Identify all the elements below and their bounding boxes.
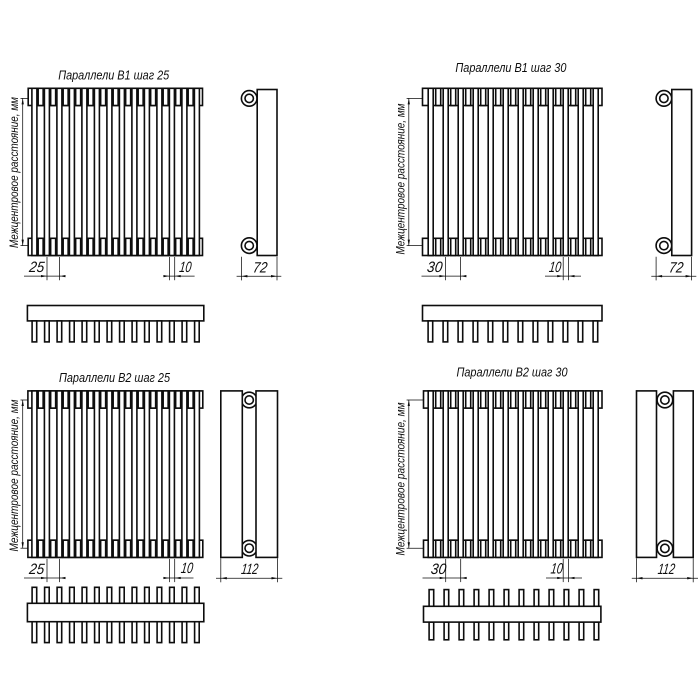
svg-text:72: 72 bbox=[668, 260, 685, 277]
svg-text:30: 30 bbox=[426, 259, 444, 276]
svg-text:25: 25 bbox=[27, 259, 46, 276]
svg-text:112: 112 bbox=[657, 561, 677, 578]
svg-text:25: 25 bbox=[27, 561, 46, 578]
svg-text:Параллели В1 шаг 25: Параллели В1 шаг 25 bbox=[58, 67, 170, 82]
svg-text:112: 112 bbox=[240, 561, 260, 578]
svg-text:Параллели В1 шаг 30: Параллели В1 шаг 30 bbox=[455, 60, 567, 75]
svg-text:Межцентровое расстояние, мм: Межцентровое расстояние, мм bbox=[395, 402, 407, 555]
svg-text:Параллели В2 шаг 30: Параллели В2 шаг 30 bbox=[457, 365, 569, 380]
svg-text:Параллели В2 шаг 25: Параллели В2 шаг 25 bbox=[59, 370, 171, 385]
svg-text:Межцентровое расстояние, мм: Межцентровое расстояние, мм bbox=[9, 399, 21, 551]
svg-text:30: 30 bbox=[430, 561, 448, 578]
svg-text:Межцентровое расстояние, мм: Межцентровое расстояние, мм bbox=[395, 103, 407, 254]
svg-text:72: 72 bbox=[252, 260, 269, 277]
svg-text:Межцентровое расстояние, мм: Межцентровое расстояние, мм bbox=[9, 97, 21, 248]
